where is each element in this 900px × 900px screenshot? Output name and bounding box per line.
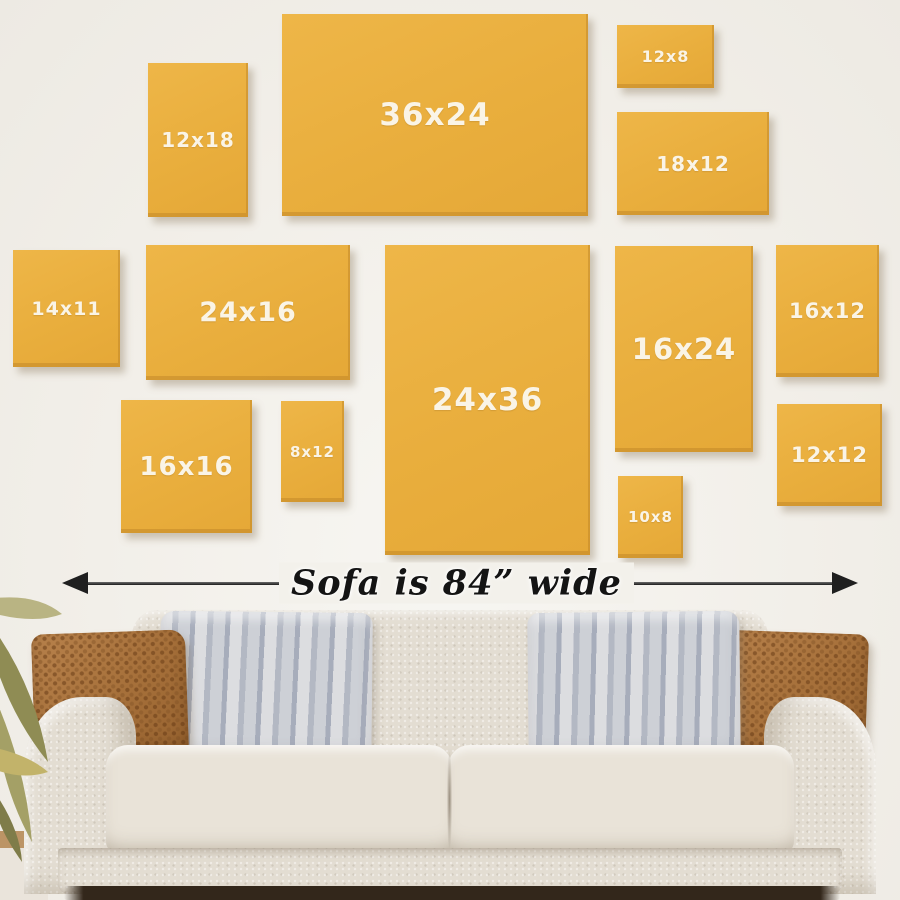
pillow-gray-left bbox=[159, 611, 373, 763]
seat-cushion-gap bbox=[447, 752, 452, 848]
sofa bbox=[0, 0, 900, 900]
seat-cushion-right bbox=[448, 745, 794, 855]
pillow-gray-right bbox=[527, 611, 741, 763]
under-sofa-shadow bbox=[64, 886, 840, 900]
potted-plant-icon bbox=[0, 580, 70, 870]
wall-art-size-guide: 12x1836x2412x818x1214x1124x1624x3616x241… bbox=[0, 0, 900, 900]
seat-cushion-left bbox=[106, 745, 452, 855]
